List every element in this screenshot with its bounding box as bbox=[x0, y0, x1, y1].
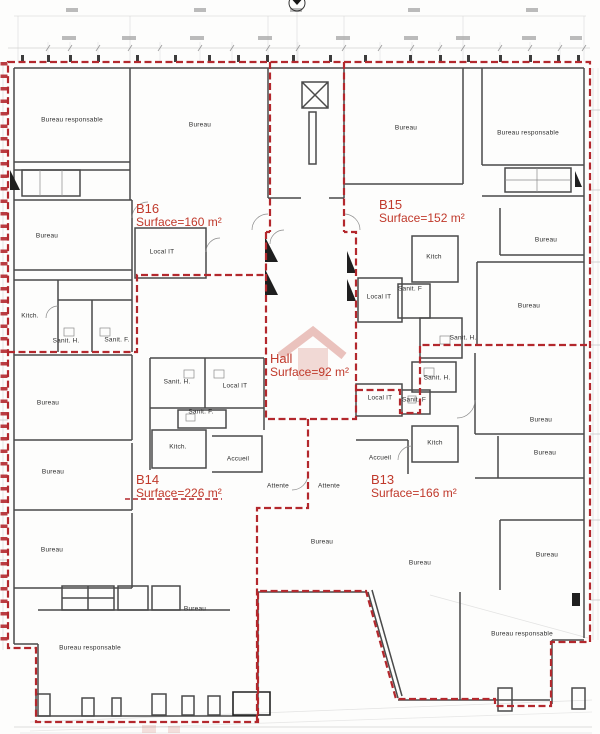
zone-label-b13: B13Surface=166 m² bbox=[371, 473, 457, 500]
room-label: Bureau bbox=[518, 303, 540, 310]
room-label: Local IT bbox=[223, 383, 248, 390]
zone-surface: Surface=226 m² bbox=[136, 487, 222, 500]
room-label: Sanit. H. bbox=[450, 335, 477, 342]
zone-surface: Surface=166 m² bbox=[371, 487, 457, 500]
room-label: Accueil bbox=[369, 455, 391, 462]
room-label: Bureau bbox=[184, 606, 206, 613]
room-label: Bureau bbox=[41, 547, 63, 554]
zone-label-b14: B14Surface=226 m² bbox=[136, 473, 222, 500]
room-label: Bureau bbox=[36, 233, 58, 240]
zone-id: B14 bbox=[136, 473, 222, 487]
room-label: Sanit. H. bbox=[53, 338, 80, 345]
zone-label-hall: HallSurface=92 m² bbox=[270, 352, 349, 379]
zone-id: B15 bbox=[379, 198, 465, 212]
zone-surface: Surface=160 m² bbox=[136, 216, 222, 229]
room-label: Local IT bbox=[367, 294, 392, 301]
room-label: Attente bbox=[318, 483, 340, 490]
room-label: Sanit. F bbox=[398, 286, 422, 293]
room-label: Bureau bbox=[42, 469, 64, 476]
room-label: Sanit. H. bbox=[164, 379, 191, 386]
room-label: Bureau bbox=[409, 560, 431, 567]
room-label: Kitch. bbox=[169, 444, 186, 451]
room-label: Bureau responsable bbox=[41, 117, 103, 124]
room-label: Sanit. F bbox=[402, 397, 426, 404]
room-label: Kitch bbox=[427, 440, 442, 447]
zone-id: B13 bbox=[371, 473, 457, 487]
floor-plan: Bureau responsableBureauBureauBureau res… bbox=[0, 0, 600, 734]
room-label: Bureau bbox=[536, 552, 558, 559]
room-label: Accueil bbox=[227, 456, 249, 463]
room-label: Sanit. F. bbox=[188, 409, 213, 416]
room-label: Sanit. H. bbox=[424, 375, 451, 382]
room-label: Attente bbox=[267, 483, 289, 490]
zone-id: Hall bbox=[270, 352, 349, 366]
room-label: Bureau bbox=[534, 450, 556, 457]
zone-surface: Surface=92 m² bbox=[270, 366, 349, 379]
zone-id: B16 bbox=[136, 202, 222, 216]
zone-label-b16: B16Surface=160 m² bbox=[136, 202, 222, 229]
room-label: Bureau responsable bbox=[59, 645, 121, 652]
room-label: Bureau bbox=[535, 237, 557, 244]
room-label: Bureau bbox=[189, 122, 211, 129]
room-label: Bureau bbox=[37, 400, 59, 407]
room-label: Bureau bbox=[311, 539, 333, 546]
room-label: Bureau bbox=[395, 125, 417, 132]
room-label: Bureau bbox=[530, 417, 552, 424]
zone-label-b15: B15Surface=152 m² bbox=[379, 198, 465, 225]
room-label: Local IT bbox=[150, 249, 175, 256]
room-label: Kitch. bbox=[21, 313, 38, 320]
room-label: Bureau responsable bbox=[497, 130, 559, 137]
room-label: Kitch bbox=[426, 254, 441, 261]
zone-surface: Surface=152 m² bbox=[379, 212, 465, 225]
plan-labels: Bureau responsableBureauBureauBureau res… bbox=[0, 0, 600, 734]
room-label: Local IT bbox=[368, 395, 393, 402]
room-label: Sanit. F. bbox=[104, 337, 129, 344]
room-label: Bureau responsable bbox=[491, 631, 553, 638]
